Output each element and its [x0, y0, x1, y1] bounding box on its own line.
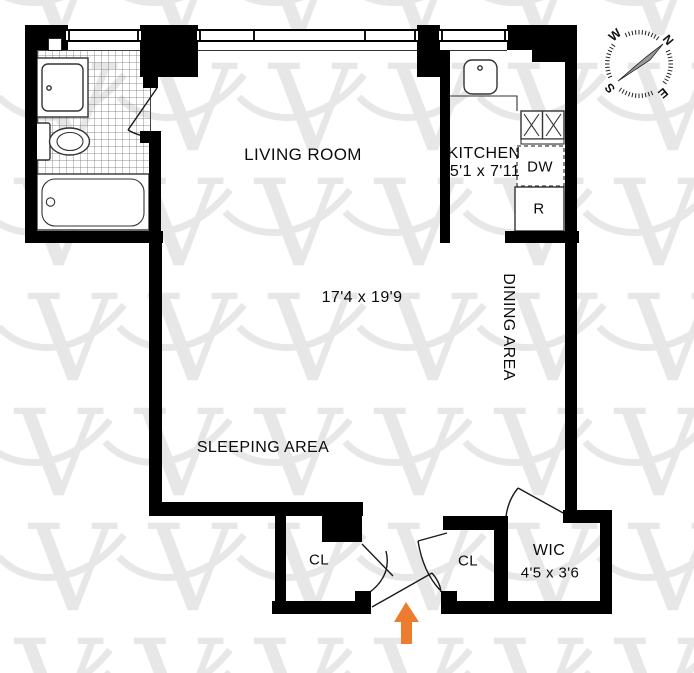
compass-tick: [607, 73, 611, 74]
compass-needle: [618, 44, 663, 81]
kitchen-counter: [450, 96, 517, 111]
compass-e-label: E: [655, 85, 670, 101]
wall-bath-right-lower: [149, 143, 161, 238]
refrigerator-label: R: [533, 201, 544, 218]
window-mullion: [68, 31, 70, 40]
stove: [521, 111, 564, 144]
wall-right: [565, 50, 577, 512]
wall-closet2-right: [494, 516, 508, 614]
wall-bottom-right: [441, 601, 612, 614]
toilet: [34, 123, 90, 160]
compass-tick: [622, 90, 624, 94]
compass-tick: [608, 76, 612, 78]
compass-tick: [668, 57, 672, 58]
compass-tick: [651, 91, 653, 95]
dining-area-label: DINING AREA: [499, 273, 517, 381]
compass-w-label: W: [606, 26, 624, 44]
wall-bath-column: [140, 25, 198, 77]
window-mullion: [137, 31, 139, 40]
window-sill-kitchen: [450, 50, 507, 51]
compass-tick: [628, 92, 629, 96]
living-room-label: LIVING ROOM: [244, 145, 362, 165]
compass-tick: [645, 93, 646, 97]
window-mullion: [441, 31, 443, 40]
wall-closet1-stub: [355, 591, 371, 602]
compass-tick: [666, 50, 670, 52]
wall-closet1-block: [322, 516, 362, 542]
wall-closet2-top: [443, 516, 494, 530]
compass-tick: [628, 32, 629, 36]
window-mullion: [364, 31, 366, 40]
entry-arrow: [394, 602, 419, 644]
wic-dims: 4'5 x 3'6: [521, 565, 580, 582]
closet2-door: [418, 533, 447, 590]
window-living-room: [197, 29, 418, 42]
compass-tick: [648, 92, 649, 96]
compass-tick: [654, 35, 656, 39]
compass-tick: [645, 31, 646, 35]
window-kitchen: [439, 29, 508, 42]
compass-tick: [619, 88, 622, 92]
compass-tick: [663, 81, 667, 84]
compass-tick: [668, 70, 672, 71]
compass-tick: [606, 70, 610, 71]
window-mullion: [504, 31, 506, 40]
wall-wic-right: [600, 510, 612, 614]
wall-top-right-block: [507, 25, 577, 50]
floorplan-canvas: VVVVVVVVVVVVVVVVVVVVVVVVVVVVVVVVVVVVVVVV…: [0, 0, 694, 673]
compass-tick: [607, 53, 611, 54]
closet2-label: CL: [458, 553, 478, 570]
kitchen-dims: 5'1 x 7'11: [450, 163, 520, 181]
wall-bathroom-bottom: [25, 231, 163, 243]
compass-tick: [665, 79, 669, 81]
dishwasher-label: DW: [527, 159, 553, 176]
window-sill-living: [198, 50, 417, 51]
compass-tick: [656, 36, 659, 40]
wall-niche: [48, 38, 62, 51]
closet1-door: [362, 544, 393, 592]
compass-tick: [667, 53, 671, 54]
wall-sleeping-bottom: [149, 502, 363, 516]
bathtub: [37, 174, 149, 230]
compass-tick: [632, 93, 633, 97]
compass-tick: [625, 33, 627, 37]
compass-tick: [632, 31, 633, 35]
bathroom-door: [128, 88, 157, 137]
kitchen-label: KITCHEN: [447, 145, 520, 163]
compass-tick: [648, 32, 649, 36]
sleeping-area-label: SLEEPING AREA: [197, 439, 329, 457]
closet1-label: CL: [309, 552, 329, 569]
bathroom-sink: [37, 58, 88, 117]
compass-tick: [667, 73, 671, 74]
wall-left-lower: [149, 238, 162, 514]
compass-rose: N E S W: [602, 26, 676, 101]
window-mullion: [253, 31, 255, 40]
living-room-dims: 17'4 x 19'9: [322, 289, 403, 307]
wic-label: WIC: [533, 542, 565, 560]
compass-tick: [651, 33, 653, 37]
wall-kitchen-pier: [417, 25, 440, 77]
wic-door: [506, 488, 565, 517]
plan-vector-layer: N E S W: [0, 0, 694, 673]
window-mullion: [414, 31, 416, 40]
wall-closet1-left: [275, 516, 286, 602]
wall-closet1-bottom: [272, 601, 371, 614]
window-mullion: [199, 31, 201, 40]
compass-tick: [666, 76, 670, 78]
compass-tick: [608, 50, 612, 52]
compass-tick: [606, 57, 610, 58]
compass-tick: [610, 47, 614, 49]
wall-left-bathroom: [25, 45, 37, 242]
window-bathroom: [66, 29, 141, 42]
wall-bath-door-stub: [140, 131, 161, 143]
kitchen-sink: [464, 60, 497, 94]
wall-bath-door-header: [143, 77, 158, 88]
compass-s-label: S: [602, 80, 618, 95]
compass-tick: [625, 91, 627, 95]
